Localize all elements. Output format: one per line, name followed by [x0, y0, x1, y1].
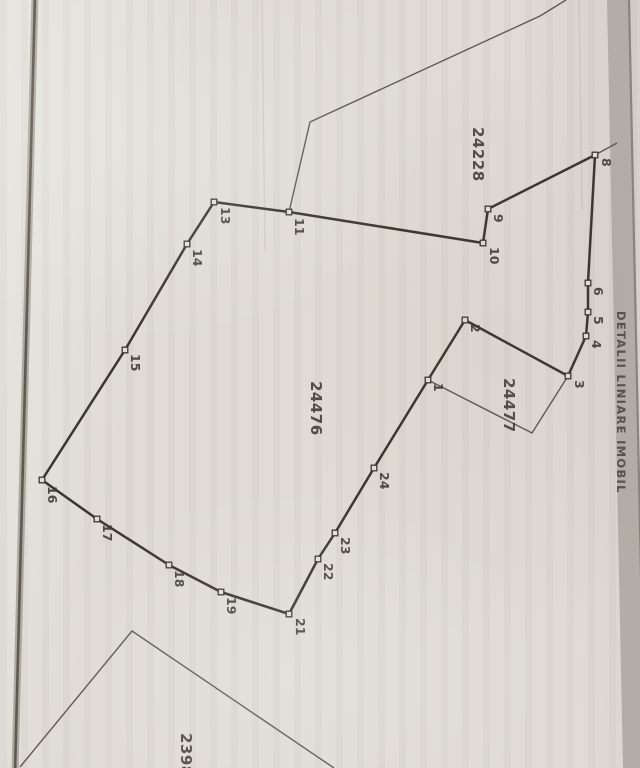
left-fold-line — [15, 0, 35, 768]
vertex-label-15: 15 — [128, 354, 143, 371]
vertex-marker-23 — [332, 530, 338, 536]
vertex-label-19: 19 — [224, 597, 239, 614]
vertex-marker-3 — [565, 373, 571, 379]
vertex-label-16: 16 — [45, 486, 60, 504]
faint-streak-1 — [262, 0, 265, 250]
vertex-label-9: 9 — [491, 214, 506, 223]
vertex-label-4: 4 — [589, 340, 604, 349]
cadastral-plan-svg: 1234568910111314151617181921222324 24228… — [0, 0, 640, 768]
vertex-label-18: 18 — [172, 570, 187, 587]
vertex-label-11: 11 — [292, 218, 307, 235]
vertex-marker-4 — [583, 333, 589, 339]
vertex-marker-19 — [218, 589, 224, 595]
vertex-marker-9 — [485, 206, 491, 212]
vertex-marker-17 — [94, 516, 100, 522]
parcel-label-24228: 24228 — [469, 127, 487, 182]
scan-artifacts-layer — [15, 0, 640, 768]
vertex-marker-13 — [211, 199, 217, 205]
vertex-labels-layer: 1234568910111314151617181921222324 — [45, 158, 614, 635]
parcel-2398-outline — [20, 631, 334, 768]
parcel-24477-inner-boundary — [428, 376, 568, 433]
vertex-label-8: 8 — [599, 158, 614, 167]
vertex-marker-10 — [480, 240, 486, 246]
side-caption-detalii-liniare-imobil: DETALII LINIARE IMOBIL — [614, 311, 628, 494]
vertex-label-13: 13 — [218, 207, 233, 224]
parcel-label-24477: 24477 — [500, 378, 518, 433]
vertex-label-21: 21 — [293, 618, 308, 635]
vertex-marker-24 — [371, 465, 377, 471]
vertex-marker-18 — [166, 562, 172, 568]
vertex-label-24: 24 — [377, 472, 392, 490]
vertex-marker-21 — [286, 611, 292, 617]
faint-streak-0 — [579, 0, 582, 210]
parcel-24228-west-boundary — [289, 0, 566, 212]
vertex-marker-16 — [39, 477, 45, 483]
vertex-label-22: 22 — [321, 563, 336, 580]
vertex-marker-15 — [122, 347, 128, 353]
vertex-marker-1 — [425, 377, 431, 383]
vertex-label-5: 5 — [591, 316, 606, 325]
vertex-label-2: 2 — [468, 324, 483, 333]
vertex-label-17: 17 — [100, 524, 115, 541]
vertex-label-3: 3 — [572, 380, 587, 389]
vertex-marker-14 — [184, 241, 190, 247]
vertex-marker-8 — [592, 152, 598, 158]
vertex-marker-2 — [462, 317, 468, 323]
vertex-marker-22 — [315, 556, 321, 562]
vertex-label-10: 10 — [487, 247, 502, 265]
vertex-marker-6 — [585, 280, 591, 286]
parcel-label-2398: 2398 — [177, 733, 195, 768]
vertex-label-23: 23 — [338, 537, 353, 554]
vertex-marker-11 — [286, 209, 292, 215]
vertex-marker-5 — [585, 309, 591, 315]
vertex-label-1: 1 — [431, 383, 446, 392]
vertex-label-6: 6 — [591, 287, 606, 296]
vertex-label-14: 14 — [190, 249, 205, 267]
parcel-label-24476: 24476 — [307, 381, 325, 436]
scanned-cadastral-page: 1234568910111314151617181921222324 24228… — [0, 0, 640, 768]
